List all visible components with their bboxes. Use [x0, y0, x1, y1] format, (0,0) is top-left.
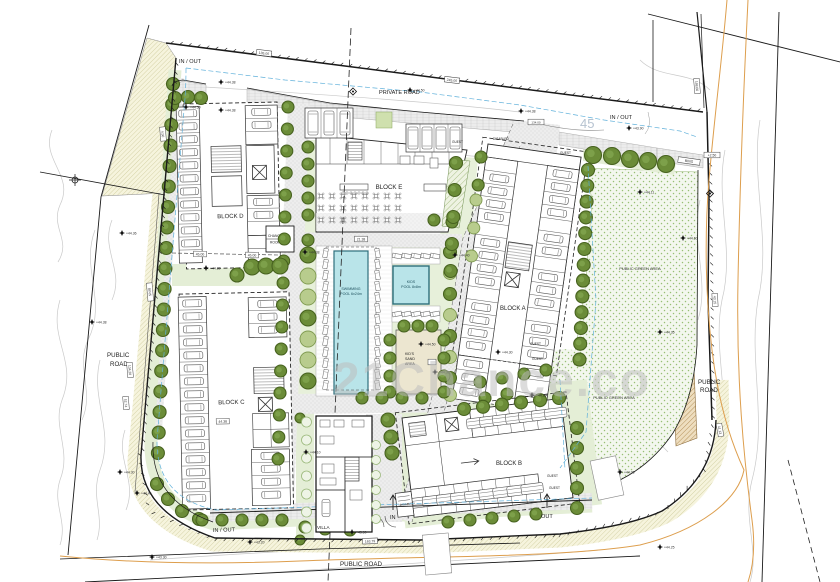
svg-text:+43.30: +43.30	[156, 556, 167, 560]
svg-text:GUEST: GUEST	[560, 151, 571, 155]
svg-text:PUBLIC: PUBLIC	[698, 379, 721, 386]
svg-text:+44.38: +44.38	[309, 251, 320, 255]
svg-text:VILLA: VILLA	[317, 525, 330, 530]
svg-text:GUEST: GUEST	[549, 486, 560, 490]
svg-text:BLOCK E: BLOCK E	[376, 184, 403, 191]
svg-text:SWIMMING: SWIMMING	[341, 287, 360, 291]
svg-text:+44.36: +44.36	[126, 232, 137, 236]
svg-text:OUT: OUT	[541, 514, 553, 520]
svg-text:45.00: 45.00	[248, 253, 257, 257]
svg-text:GUEST: GUEST	[547, 474, 558, 478]
svg-text:+44.38: +44.38	[96, 321, 107, 325]
svg-text:44.38: 44.38	[218, 420, 227, 424]
svg-text:+44.45: +44.45	[141, 492, 152, 496]
svg-text:BLOCK A: BLOCK A	[500, 306, 526, 312]
svg-text:45: 45	[580, 116, 594, 131]
svg-text:43.15: 43.15	[712, 296, 716, 305]
svg-text:DISABLED: DISABLED	[493, 137, 509, 141]
svg-text:PUBLIC: PUBLIC	[107, 352, 130, 359]
svg-text:+44.50: +44.50	[425, 343, 436, 347]
svg-text:+44.60: +44.60	[687, 237, 698, 241]
svg-text:IN / OUT: IN / OUT	[179, 59, 202, 65]
svg-text:+2.50: +2.50	[708, 153, 717, 157]
svg-text:45.00: 45.00	[196, 252, 205, 256]
svg-text:KIDS: KIDS	[407, 280, 416, 284]
svg-text:+44.10: +44.10	[310, 451, 321, 455]
svg-text:+43.90: +43.90	[633, 127, 644, 131]
svg-text:+44.30: +44.30	[210, 267, 221, 271]
svg-text:GUEST: GUEST	[452, 140, 463, 144]
svg-text:+44.38: +44.38	[225, 109, 236, 113]
svg-text:4.50: 4.50	[160, 131, 165, 138]
svg-text:ROAD: ROAD	[700, 387, 718, 394]
svg-text:ROAD: ROAD	[110, 361, 128, 368]
svg-text:BINS: BINS	[147, 288, 152, 297]
svg-text:+44.38: +44.38	[225, 81, 236, 85]
svg-text:+43.20: +43.20	[254, 541, 265, 545]
svg-text:21.38: 21.38	[357, 237, 366, 241]
svg-text:IN: IN	[390, 515, 396, 521]
svg-text:52.74: 52.74	[123, 399, 128, 408]
svg-text:+44.11: +44.11	[644, 191, 654, 195]
svg-text:+44.25: +44.25	[664, 546, 675, 550]
svg-text:+44.38: +44.38	[525, 110, 536, 114]
svg-text:+44.30: +44.30	[124, 471, 135, 475]
svg-text:POOL 8x8m: POOL 8x8m	[401, 285, 421, 289]
svg-text:+44.40: +44.40	[459, 254, 470, 258]
svg-text:POOL 6x24m: POOL 6x24m	[340, 292, 362, 296]
svg-text:GUEST: GUEST	[530, 342, 541, 346]
svg-text:BLOCK C: BLOCK C	[218, 400, 245, 407]
svg-text:163.79: 163.79	[365, 539, 376, 543]
svg-text:+44.50: +44.50	[414, 89, 425, 93]
svg-text:+44.35: +44.35	[664, 331, 675, 335]
svg-text:+44.50: +44.50	[190, 106, 201, 110]
svg-text:IN / OUT: IN / OUT	[213, 527, 236, 534]
svg-text:PUBLIC ROAD: PUBLIC ROAD	[340, 561, 382, 568]
svg-text:21Chance.co: 21Chance.co	[333, 354, 651, 407]
svg-text:PUBLIC GREEN AREA: PUBLIC GREEN AREA	[619, 266, 661, 271]
svg-text:IN / OUT: IN / OUT	[610, 115, 633, 121]
svg-text:+43.50: +43.50	[356, 531, 367, 535]
svg-text:BLOCK D: BLOCK D	[217, 214, 244, 221]
svg-text:+44.05: +44.05	[624, 471, 635, 475]
svg-text:134.00: 134.00	[531, 120, 541, 124]
svg-text:BLOCK B: BLOCK B	[496, 461, 522, 467]
